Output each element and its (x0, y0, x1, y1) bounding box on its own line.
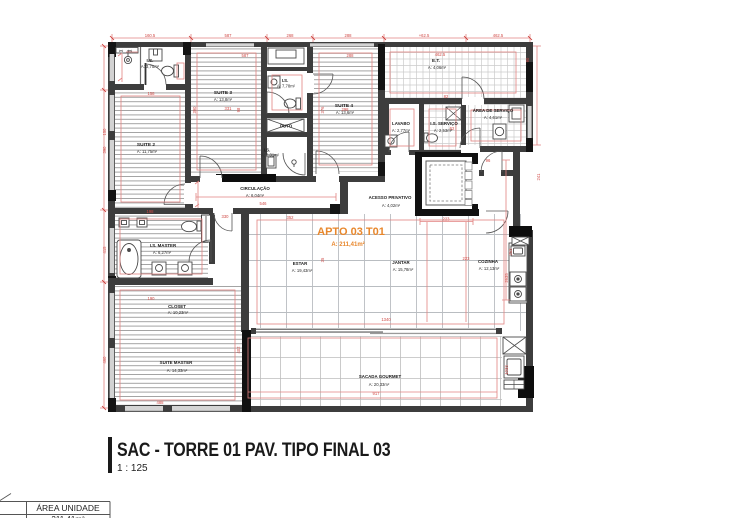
svg-text:CLOSET: CLOSET (168, 304, 186, 309)
svg-text:ESTAR: ESTAR (293, 261, 308, 266)
svg-text:390: 390 (192, 106, 197, 114)
svg-text:A: 4,61m²: A: 4,61m² (484, 115, 503, 120)
svg-text:SACADA GOURMET: SACADA GOURMET (359, 374, 402, 379)
svg-text:SUITE 4: SUITE 4 (335, 103, 353, 109)
svg-text:158: 158 (148, 91, 156, 96)
svg-text:ÁREA UNIDADE: ÁREA UNIDADE (36, 503, 100, 513)
svg-text:I.S. SERVIÇO: I.S. SERVIÇO (430, 121, 458, 126)
svg-text:331: 331 (225, 106, 233, 111)
svg-text:A: 15,78m²: A: 15,78m² (393, 267, 414, 272)
svg-text:A: 13,6m²: A: 13,6m² (336, 110, 355, 115)
svg-text:E.T.: E.T. (432, 58, 440, 63)
svg-text:ÁREA DE SERVIÇO: ÁREA DE SERVIÇO (473, 108, 514, 113)
svg-text:SAC - TORRE 01 PAV. TIPO FINAL: SAC - TORRE 01 PAV. TIPO FINAL 03 (117, 439, 391, 461)
svg-text:SUITE 3: SUITE 3 (214, 90, 232, 96)
svg-text:COZINHA: COZINHA (478, 259, 499, 264)
svg-text:+62.5: +62.5 (419, 33, 430, 38)
svg-text:A: 7,78m²: A: 7,78m² (277, 84, 296, 89)
svg-text:A: 2,31m²: A: 2,31m² (261, 153, 280, 158)
svg-text:198: 198 (147, 209, 155, 214)
svg-text:A: 19,43m²: A: 19,43m² (292, 268, 313, 273)
svg-text:462.5: 462.5 (493, 33, 504, 38)
svg-text:35: 35 (320, 257, 325, 262)
svg-text:A: 12,13m²: A: 12,13m² (479, 266, 500, 271)
svg-text:A: 11,75m²: A: 11,75m² (137, 149, 158, 154)
svg-text:A: 4,06m²: A: 4,06m² (428, 65, 447, 70)
svg-text:A: 4,02m²: A: 4,02m² (382, 203, 401, 208)
svg-text:546: 546 (260, 201, 268, 206)
svg-text:90: 90 (525, 57, 530, 62)
svg-text:SUITE 2: SUITE 2 (137, 142, 155, 148)
svg-text:A: 2,77m²: A: 2,77m² (392, 128, 411, 133)
svg-text:A: 211,41m²: A: 211,41m² (331, 241, 364, 248)
svg-text:A: 20,33m²: A: 20,33m² (369, 382, 390, 387)
svg-text:ACESSO PRIVATIVO: ACESSO PRIVATIVO (369, 195, 412, 200)
svg-text:150: 150 (102, 128, 107, 136)
svg-text:587: 587 (242, 53, 250, 58)
svg-text:A: 6,27m²: A: 6,27m² (153, 250, 172, 255)
svg-text:1033: 1033 (504, 365, 509, 375)
svg-text:190: 190 (148, 296, 156, 301)
svg-text:330: 330 (222, 214, 230, 219)
svg-text:DUTO: DUTO (280, 124, 293, 129)
svg-text:I.S.: I.S. (282, 78, 289, 83)
svg-text:223: 223 (463, 256, 471, 261)
svg-text:LAVABO: LAVABO (392, 121, 410, 126)
svg-text:415: 415 (102, 246, 107, 254)
svg-text:288: 288 (347, 53, 355, 58)
svg-text:1340: 1340 (381, 317, 391, 322)
svg-text:268: 268 (287, 33, 295, 38)
svg-text:A: 2,53m²: A: 2,53m² (434, 128, 453, 133)
svg-text:A: 10,23m²: A: 10,23m² (168, 310, 189, 315)
svg-text:460: 460 (102, 356, 107, 364)
svg-text:A: 14,33m²: A: 14,33m² (167, 368, 188, 373)
svg-text:96: 96 (486, 158, 491, 163)
svg-text:917: 917 (373, 391, 381, 396)
svg-text:253: 253 (508, 248, 513, 256)
svg-text:587: 587 (225, 33, 233, 38)
svg-text:288: 288 (345, 33, 353, 38)
svg-text:A: 6,04m²: A: 6,04m² (246, 193, 265, 198)
svg-text:JANTAR: JANTAR (392, 260, 410, 265)
svg-text:488: 488 (157, 400, 165, 405)
svg-text:390: 390 (102, 146, 107, 154)
svg-text:160.5: 160.5 (145, 33, 156, 38)
svg-text:352: 352 (287, 215, 295, 220)
svg-text:98: 98 (236, 107, 241, 112)
svg-text:223: 223 (443, 217, 451, 222)
svg-text:1 : 125: 1 : 125 (117, 463, 148, 474)
svg-text:APTO 03 T01: APTO 03 T01 (317, 226, 385, 238)
svg-text:376: 376 (320, 106, 325, 114)
svg-text:I.S.: I.S. (147, 58, 154, 63)
svg-text:SUITE MASTER: SUITE MASTER (160, 360, 194, 365)
svg-text:402: 402 (236, 346, 241, 354)
svg-text:A: 13,8m²: A: 13,8m² (214, 97, 233, 102)
svg-text:I.S. MASTER: I.S. MASTER (150, 243, 177, 248)
svg-text:82: 82 (444, 94, 449, 99)
svg-text:462.5: 462.5 (435, 52, 446, 57)
svg-text:2635: 2635 (504, 273, 509, 283)
svg-text:A: 3,75m²: A: 3,75m² (141, 64, 160, 69)
svg-text:CIRCULAÇÃO: CIRCULAÇÃO (240, 186, 270, 191)
svg-text:241: 241 (536, 173, 541, 181)
